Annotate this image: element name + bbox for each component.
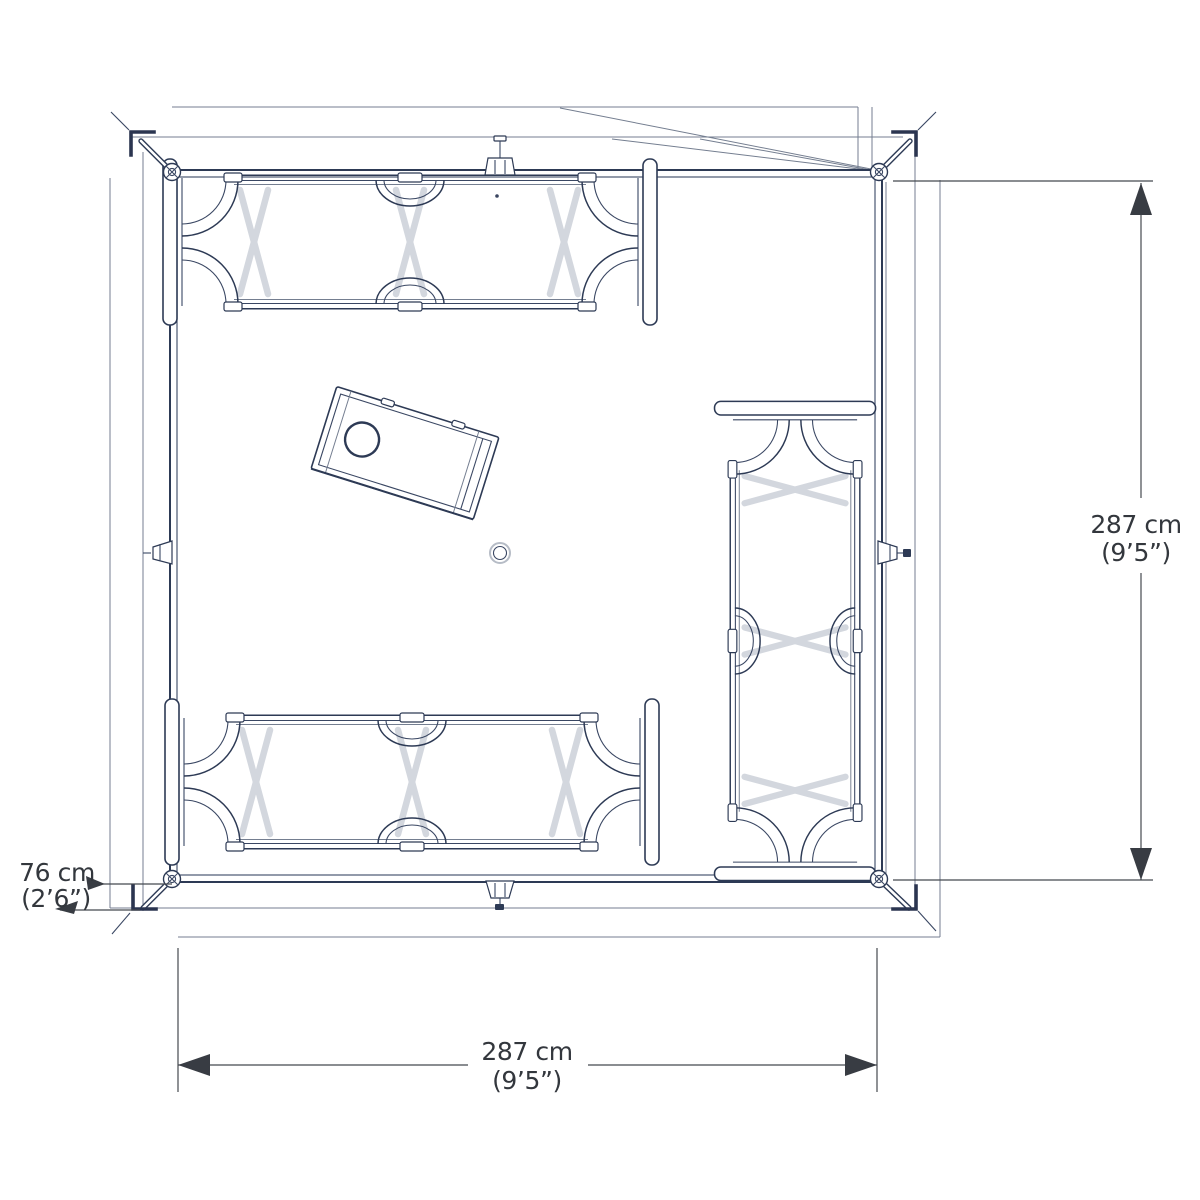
tent-walls: [170, 170, 882, 882]
wall-fixture-bottom: [486, 881, 514, 910]
arrow-down-icon: [1130, 848, 1152, 880]
corner-bottom-left: [112, 871, 181, 935]
centre-pole-base: [490, 543, 510, 563]
floor-plan-page: 287 cm (9’5”) 287 cm (9’5”) 76 cm (2’6”): [0, 0, 1200, 1200]
width-imperial-label: (9’5”): [492, 1066, 562, 1095]
cot-top: [163, 159, 657, 325]
wall-fixture-top: [485, 136, 515, 198]
door-flap: [560, 107, 876, 171]
arrow-left-icon: [178, 1054, 210, 1076]
porch-value-label: 76 cm: [19, 858, 95, 887]
depth-imperial-label: (9’5”): [1101, 538, 1171, 567]
camp-table: [311, 384, 500, 520]
depth-value-label: 287 cm: [1090, 510, 1181, 539]
tent-outline: [110, 107, 940, 937]
floor-plan-canvas: 287 cm (9’5”) 287 cm (9’5”) 76 cm (2’6”): [0, 0, 1200, 1200]
corner-top-right: [871, 112, 937, 181]
porch-imperial-label: (2’6”): [21, 884, 91, 913]
cot-bottom: [165, 699, 659, 865]
arrow-right-icon: [845, 1054, 877, 1076]
wall-fixture-right: [878, 541, 911, 564]
corner-top-left: [111, 112, 181, 181]
wall-fixture-left: [143, 541, 172, 564]
dimension-width: 287 cm (9’5”): [178, 948, 877, 1095]
arrow-up-icon: [1130, 183, 1152, 215]
cot-right: [715, 401, 876, 880]
dimension-depth: 287 cm (9’5”): [893, 181, 1182, 880]
width-value-label: 287 cm: [481, 1037, 572, 1066]
